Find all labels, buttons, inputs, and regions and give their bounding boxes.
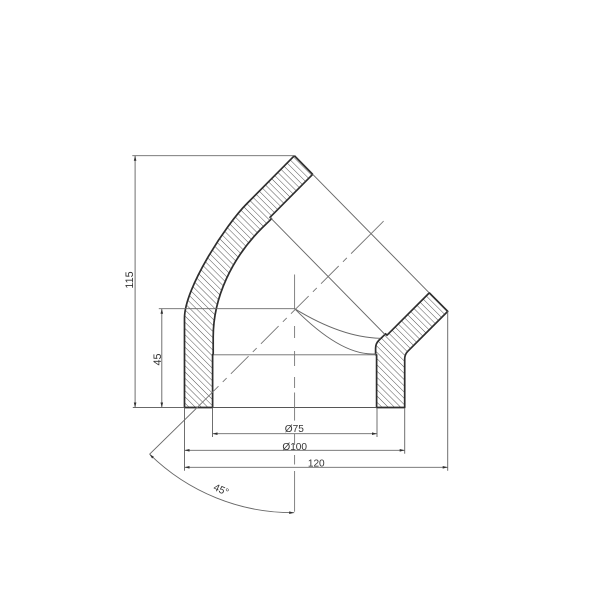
svg-text:Ø75: Ø75 (285, 424, 304, 435)
svg-text:45: 45 (152, 353, 164, 365)
svg-text:115: 115 (124, 271, 136, 288)
svg-text:Ø100: Ø100 (282, 442, 307, 453)
svg-text:120: 120 (308, 458, 325, 469)
